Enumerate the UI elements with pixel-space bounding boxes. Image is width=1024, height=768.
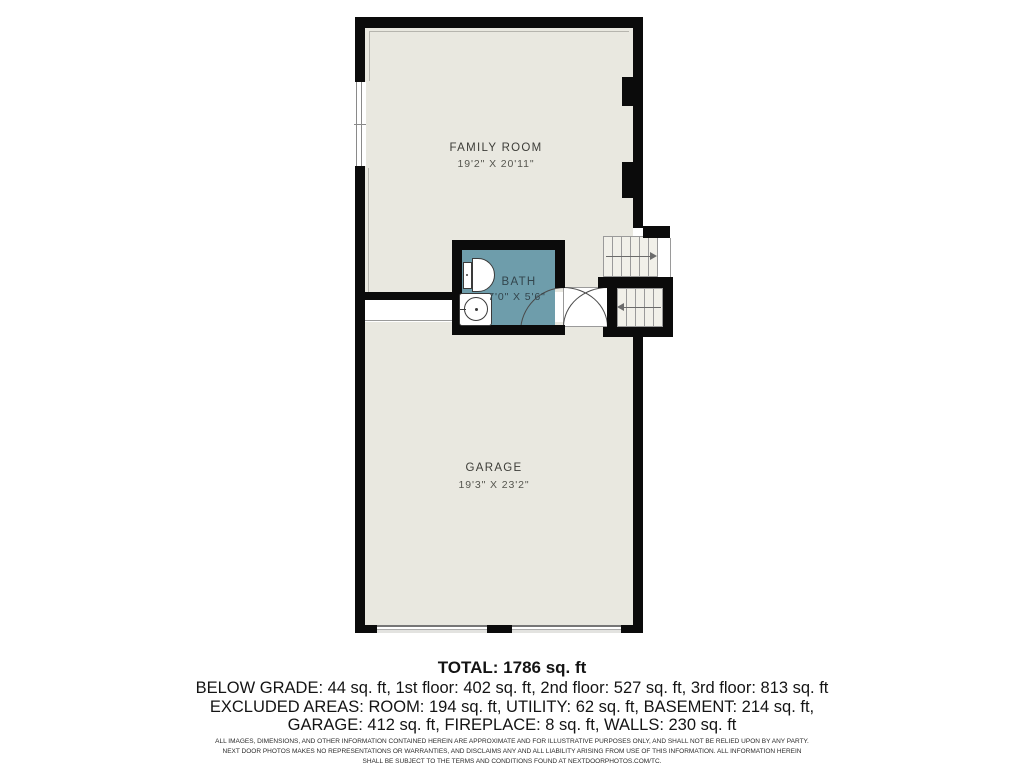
wall-segment <box>555 240 565 288</box>
floor-areas-text: BELOW GRADE: 44 sq. ft, 1st floor: 402 s… <box>0 679 1024 698</box>
garage-dimensions: 19'3" X 23'2" <box>458 479 529 491</box>
garage-door <box>377 625 487 633</box>
sink-icon <box>475 308 478 311</box>
wall-opening <box>365 300 452 322</box>
wall-segment <box>355 17 643 28</box>
family-room-label: FAMILY ROOM <box>449 142 542 154</box>
wall-segment <box>607 288 617 327</box>
wall-segment <box>598 277 672 288</box>
floor-plan: FAMILY ROOM 19'2" X 20'11" BATH 7'0" X 5… <box>0 0 1024 768</box>
window-line <box>354 124 366 125</box>
wall-segment <box>643 226 670 238</box>
wall-opening-line <box>365 320 452 321</box>
trim-line <box>368 168 369 292</box>
stair-landing <box>658 238 671 277</box>
trim-line <box>369 31 370 81</box>
bath-dimensions: 7'0" X 5'6" <box>488 291 546 303</box>
bath-label: BATH <box>501 276 536 288</box>
wall-segment <box>355 165 365 633</box>
excluded-areas-text-1: EXCLUDED AREAS: ROOM: 194 sq. ft, UTILIT… <box>0 698 1024 717</box>
family-room-dimensions: 19'2" X 20'11" <box>458 158 535 170</box>
sink-faucet <box>459 309 466 310</box>
disclaimer-line: ALL IMAGES, DIMENSIONS, AND OTHER INFORM… <box>0 737 1024 747</box>
wall-segment <box>355 292 457 300</box>
total-area-text: TOTAL: 1786 sq. ft <box>0 658 1024 678</box>
wall-segment <box>355 625 377 633</box>
stairs-up-arrow <box>606 256 651 257</box>
garage-door <box>512 625 621 633</box>
toilet-icon <box>466 274 468 276</box>
wall-segment <box>621 625 643 633</box>
disclaimer-line: SHALL BE SUBJECT TO THE TERMS AND CONDIT… <box>0 757 1024 767</box>
trim-line <box>369 31 629 32</box>
arrow-left-icon <box>617 303 624 311</box>
wall-pier <box>622 162 633 198</box>
stairs-down-arrow <box>623 307 661 308</box>
excluded-areas-text-2: GARAGE: 412 sq. ft, FIREPLACE: 8 sq. ft,… <box>0 716 1024 735</box>
wall-segment <box>487 625 512 633</box>
wall-pier <box>622 77 633 106</box>
arrow-right-icon <box>650 252 657 260</box>
page-background: { "plan": { "rooms": { "family_room": { … <box>0 0 1024 768</box>
wall-segment <box>452 240 565 250</box>
disclaimer: ALL IMAGES, DIMENSIONS, AND OTHER INFORM… <box>0 737 1024 766</box>
garage-label: GARAGE <box>465 462 522 474</box>
wall-segment <box>355 17 365 83</box>
disclaimer-line: NEXT DOOR PHOTOS MAKES NO REPRESENTATION… <box>0 747 1024 757</box>
wall-segment <box>633 17 643 228</box>
wall-segment <box>633 335 643 633</box>
wall-segment <box>452 325 565 335</box>
